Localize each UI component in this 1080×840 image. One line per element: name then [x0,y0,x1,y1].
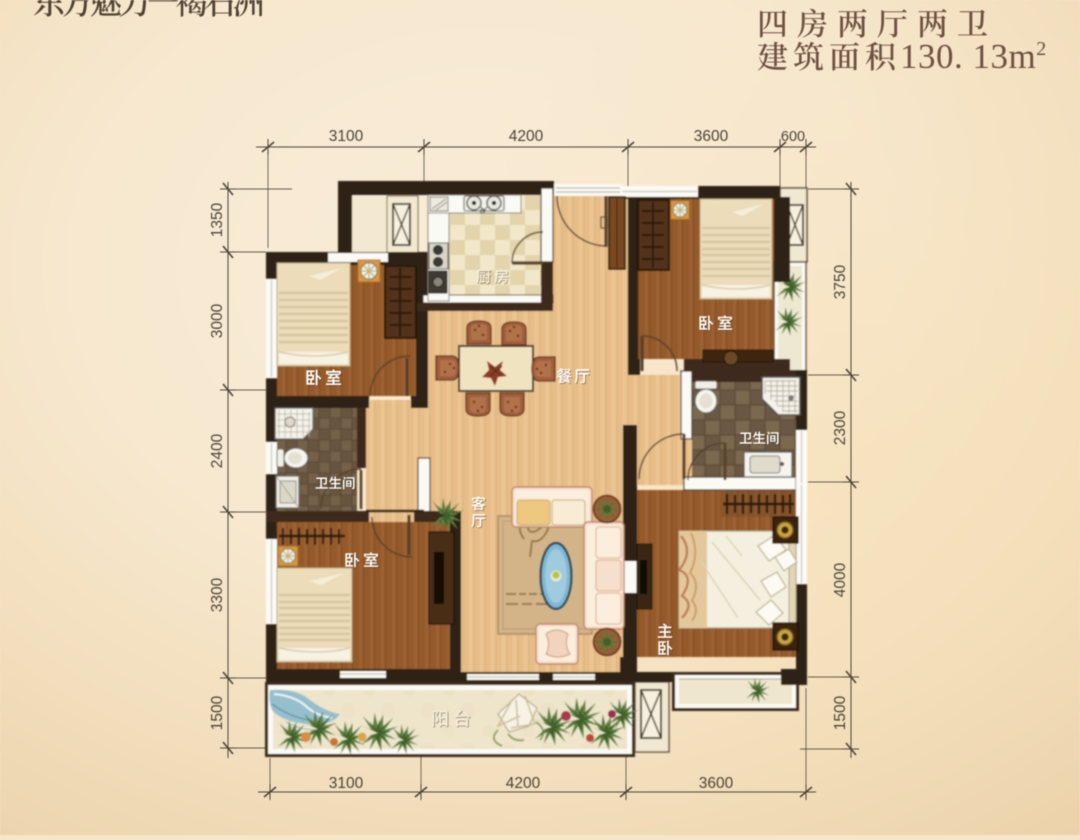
svg-text:600: 600 [781,129,805,145]
svg-text:4200: 4200 [509,128,544,145]
svg-text:3300: 3300 [209,577,226,612]
svg-text:3100: 3100 [329,128,364,145]
svg-text:1500: 1500 [209,695,226,730]
svg-text:2300: 2300 [832,410,849,445]
svg-text:130. 13m2: 130. 13m2 [900,37,1047,76]
svg-text:4000: 4000 [832,562,849,597]
svg-text:3750: 3750 [832,264,849,299]
svg-text:3600: 3600 [694,128,729,145]
svg-text:3600: 3600 [699,775,734,792]
svg-text:1350: 1350 [209,202,226,237]
svg-text:3100: 3100 [329,775,364,792]
svg-text:4200: 4200 [506,775,541,792]
svg-text:3000: 3000 [209,303,226,338]
svg-text:2400: 2400 [209,433,226,468]
svg-text:1500: 1500 [832,695,849,730]
